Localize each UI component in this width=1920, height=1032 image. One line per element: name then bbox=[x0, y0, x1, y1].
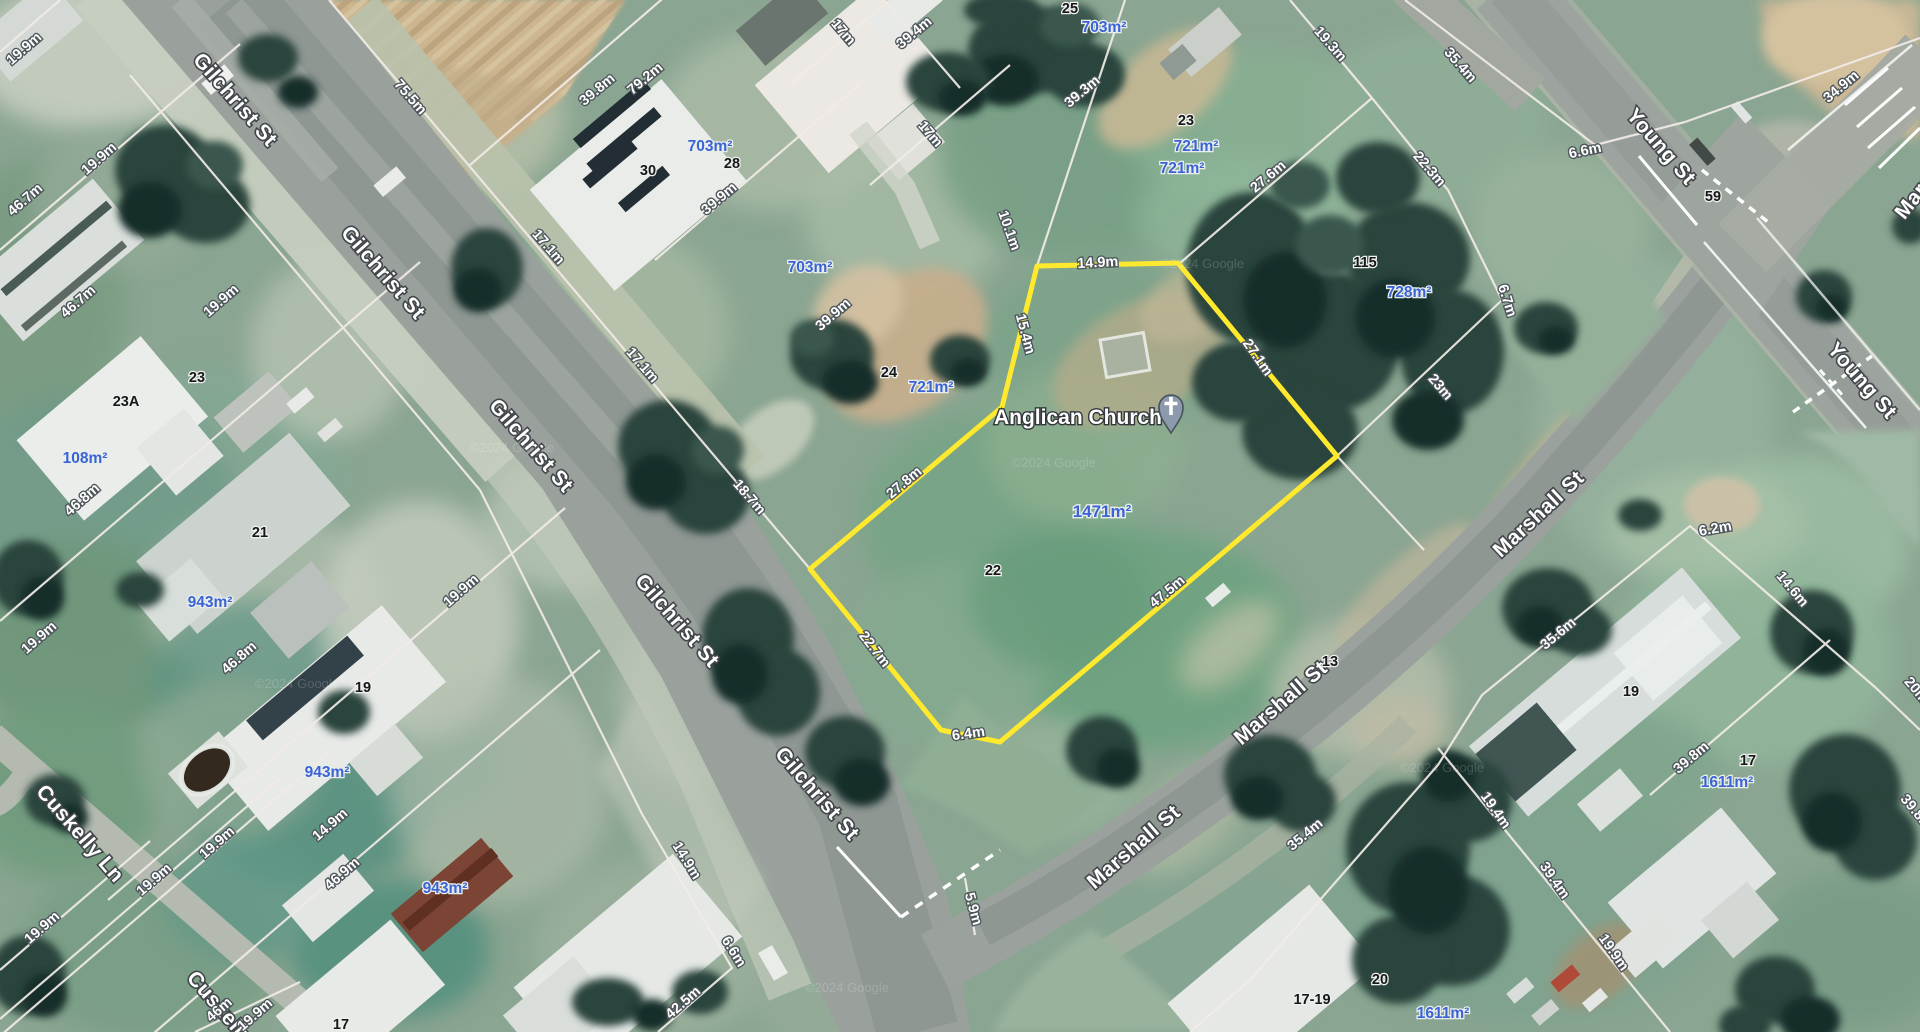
svg-text:©2024 Google: ©2024 Google bbox=[805, 980, 889, 995]
svg-text:17-19: 17-19 bbox=[1293, 992, 1330, 1008]
svg-text:721m²: 721m² bbox=[1160, 160, 1205, 177]
svg-text:728m²: 728m² bbox=[1387, 284, 1432, 301]
svg-text:30: 30 bbox=[640, 163, 656, 179]
svg-text:©2024 Google: ©2024 Google bbox=[1400, 760, 1484, 775]
svg-text:943m²: 943m² bbox=[423, 880, 468, 897]
svg-text:943m²: 943m² bbox=[305, 764, 350, 781]
svg-text:14.9m: 14.9m bbox=[1077, 254, 1119, 272]
svg-text:721m²: 721m² bbox=[1174, 138, 1219, 155]
svg-text:1471m²: 1471m² bbox=[1073, 502, 1132, 521]
svg-text:19: 19 bbox=[1623, 684, 1639, 700]
svg-text:721m²: 721m² bbox=[909, 379, 954, 396]
svg-text:©2024 Google: ©2024 Google bbox=[255, 676, 339, 691]
svg-text:943m²: 943m² bbox=[188, 594, 233, 611]
svg-text:1611m²: 1611m² bbox=[1701, 774, 1754, 791]
svg-text:17: 17 bbox=[333, 1017, 349, 1032]
svg-text:108m²: 108m² bbox=[63, 450, 108, 467]
svg-text:1611m²: 1611m² bbox=[1417, 1005, 1470, 1022]
svg-text:Anglican Church: Anglican Church bbox=[994, 406, 1162, 429]
svg-text:23: 23 bbox=[189, 370, 205, 386]
svg-text:703m²: 703m² bbox=[788, 259, 833, 276]
svg-text:703m²: 703m² bbox=[688, 138, 733, 155]
svg-text:13: 13 bbox=[1322, 654, 1338, 670]
svg-text:23: 23 bbox=[1178, 113, 1194, 129]
svg-text:25: 25 bbox=[1062, 1, 1078, 17]
svg-text:©2024 Google: ©2024 Google bbox=[470, 440, 554, 455]
svg-text:24: 24 bbox=[881, 365, 897, 381]
svg-text:17: 17 bbox=[1740, 753, 1756, 769]
svg-text:59: 59 bbox=[1705, 189, 1721, 205]
svg-text:20: 20 bbox=[1372, 972, 1388, 988]
svg-text:22: 22 bbox=[985, 563, 1001, 579]
svg-text:28: 28 bbox=[724, 156, 740, 172]
svg-text:115: 115 bbox=[1353, 255, 1376, 271]
svg-text:©2024 Google: ©2024 Google bbox=[1160, 256, 1244, 271]
svg-text:19: 19 bbox=[355, 680, 371, 696]
svg-text:©2024 Google: ©2024 Google bbox=[1012, 455, 1096, 470]
svg-text:23A: 23A bbox=[113, 394, 140, 410]
svg-text:703m²: 703m² bbox=[1082, 19, 1127, 36]
svg-text:21: 21 bbox=[252, 525, 268, 541]
